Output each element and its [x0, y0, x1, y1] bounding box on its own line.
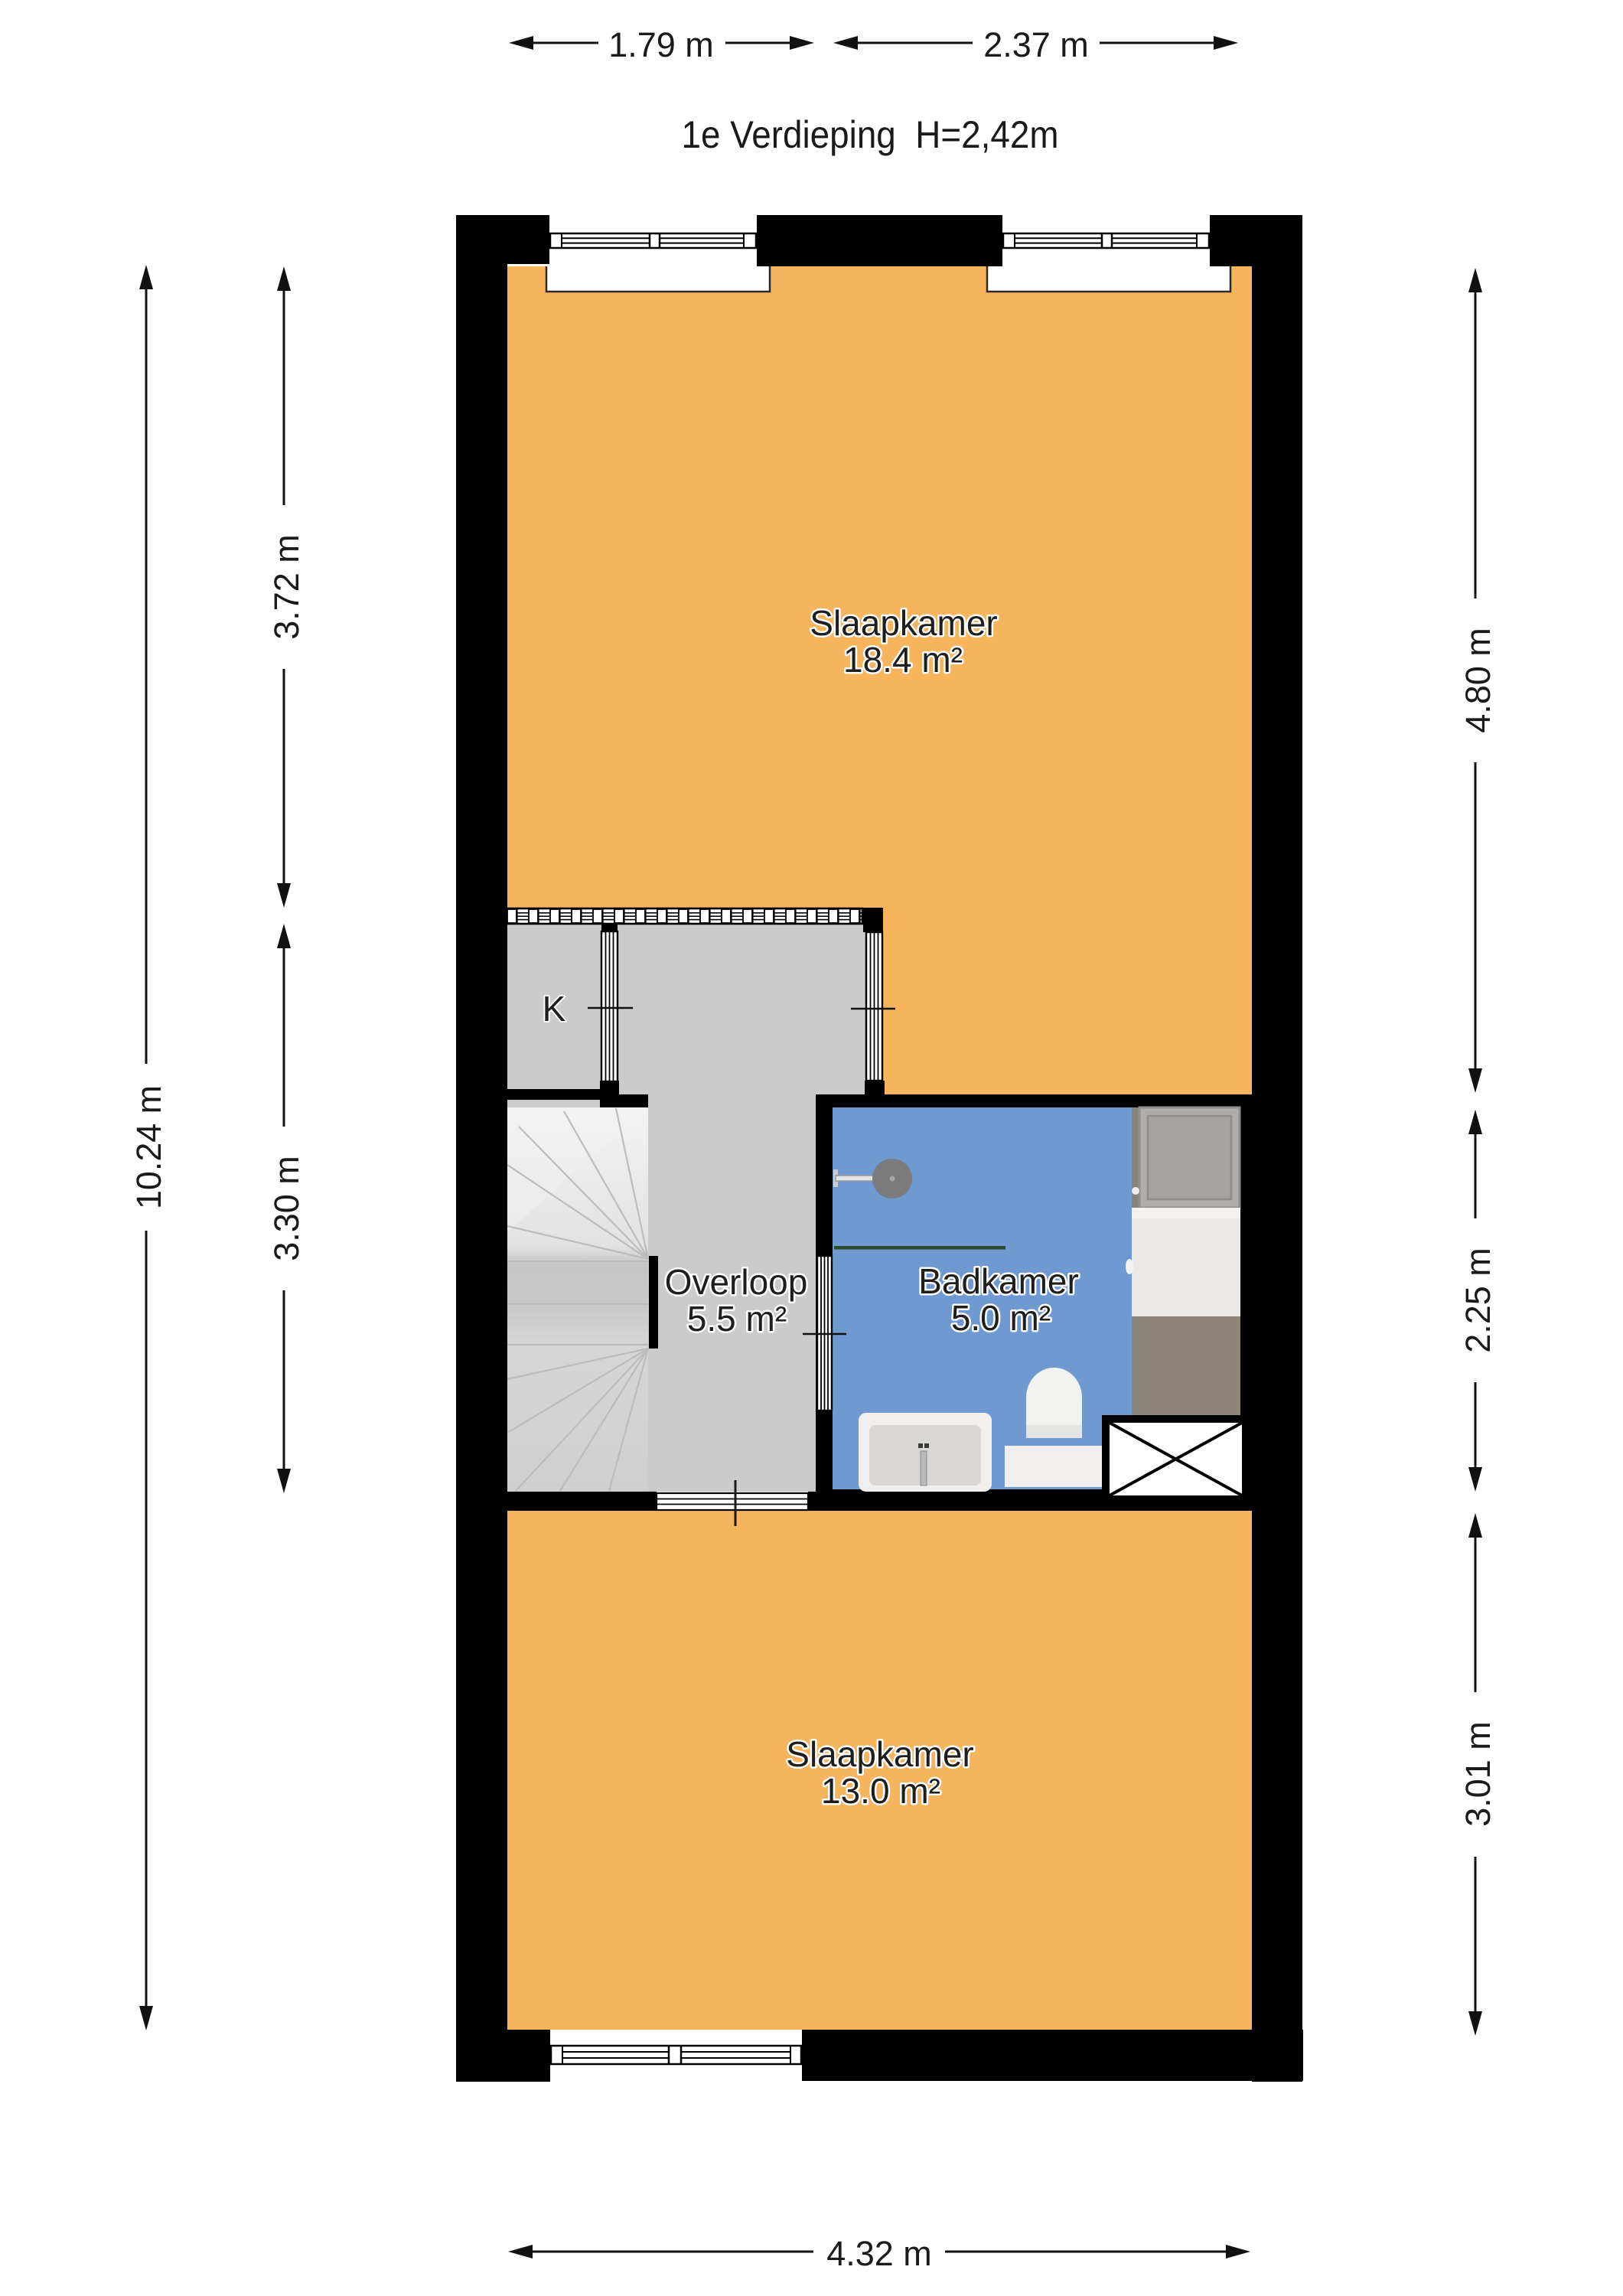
- svg-text:1e Verdieping H=2,42m: 1e Verdieping H=2,42m: [682, 113, 1059, 156]
- svg-text:3.01 m: 3.01 m: [1458, 1721, 1498, 1827]
- svg-text:Overloop: Overloop: [665, 1262, 808, 1302]
- svg-text:Slaapkamer: Slaapkamer: [810, 603, 997, 643]
- svg-text:1.79 m: 1.79 m: [608, 25, 714, 64]
- svg-text:Slaapkamer: Slaapkamer: [786, 1734, 973, 1774]
- svg-text:5.5 m²: 5.5 m²: [687, 1299, 787, 1339]
- svg-text:5.0 m²: 5.0 m²: [951, 1298, 1051, 1338]
- svg-text:18.4 m²: 18.4 m²: [843, 640, 963, 680]
- svg-text:3.30 m: 3.30 m: [267, 1156, 306, 1261]
- svg-text:K: K: [543, 989, 566, 1029]
- svg-text:13.0 m²: 13.0 m²: [821, 1771, 940, 1811]
- svg-text:2.25 m: 2.25 m: [1458, 1247, 1498, 1353]
- svg-text:4.32 m: 4.32 m: [826, 2234, 932, 2273]
- svg-text:3.72 m: 3.72 m: [267, 534, 306, 640]
- svg-text:Badkamer: Badkamer: [918, 1261, 1079, 1301]
- svg-text:10.24 m: 10.24 m: [129, 1085, 168, 1209]
- svg-text:4.80 m: 4.80 m: [1458, 628, 1498, 733]
- svg-text:2.37 m: 2.37 m: [983, 25, 1089, 64]
